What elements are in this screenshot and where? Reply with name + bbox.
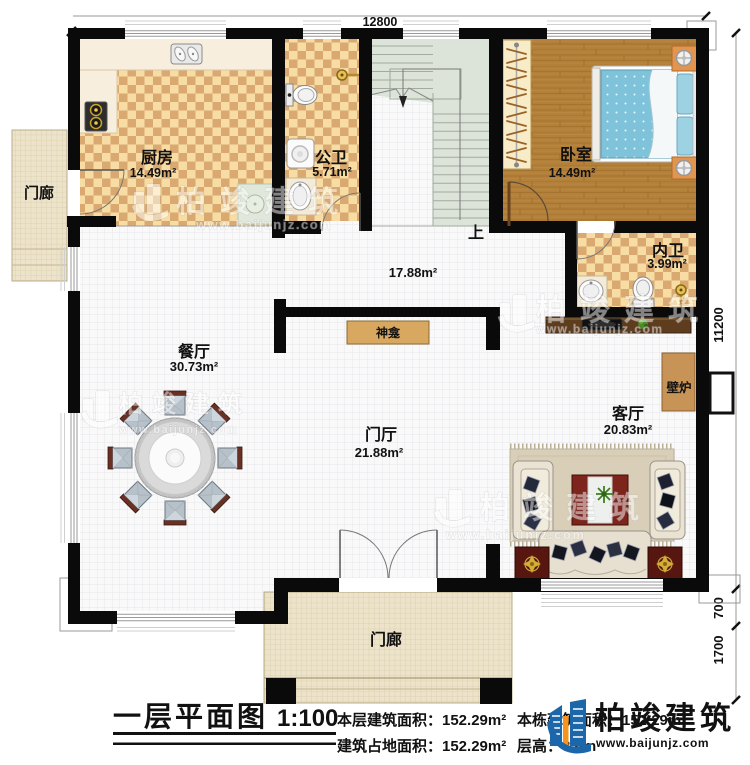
svg-text:厨房: 厨房: [141, 148, 173, 167]
svg-text:14.49m²: 14.49m²: [130, 166, 177, 180]
svg-text:www.baijunjz.com: www.baijunjz.com: [535, 322, 664, 336]
svg-text:本层建筑面积：152.29m²: 本层建筑面积：152.29m²: [337, 711, 506, 729]
svg-text:壁炉: 壁炉: [666, 380, 691, 395]
svg-text:1700: 1700: [711, 636, 726, 665]
svg-text:1:100: 1:100: [277, 705, 338, 732]
svg-text:30.73m²: 30.73m²: [170, 359, 219, 374]
svg-text:柏竣建筑: 柏竣建筑: [119, 390, 251, 418]
svg-text:神龛: 神龛: [376, 325, 401, 340]
svg-text:700: 700: [711, 597, 726, 619]
svg-text:门厅: 门厅: [365, 425, 397, 444]
svg-text:21.88m²: 21.88m²: [355, 445, 404, 460]
svg-text:柏竣建筑: 柏竣建筑: [595, 701, 735, 736]
svg-text:14.49m²: 14.49m²: [549, 166, 596, 180]
svg-text:www.baijunjz.com: www.baijunjz.com: [445, 528, 586, 542]
svg-text:柏竣建筑: 柏竣建筑: [480, 491, 652, 525]
svg-text:门廊: 门廊: [370, 630, 402, 649]
svg-text:建筑占地面积：152.29m²: 建筑占地面积：152.29m²: [337, 737, 506, 755]
svg-text:20.83m²: 20.83m²: [604, 422, 653, 437]
svg-text:柏竣建筑: 柏竣建筑: [176, 185, 352, 219]
svg-text:上: 上: [468, 224, 484, 242]
svg-text:门廊: 门廊: [24, 184, 54, 202]
svg-text:17.88m²: 17.88m²: [389, 265, 438, 280]
svg-text:客厅: 客厅: [612, 404, 644, 423]
svg-text:www.baijunjz.com: www.baijunjz.com: [595, 736, 709, 750]
svg-text:www.baijunjz.com: www.baijunjz.com: [118, 424, 238, 436]
svg-text:11200: 11200: [711, 307, 726, 342]
svg-text:5.71m²: 5.71m²: [312, 165, 352, 179]
svg-text:12800: 12800: [363, 15, 398, 29]
svg-text:3.99m²: 3.99m²: [647, 257, 687, 271]
svg-text:一层平面图: 一层平面图: [113, 701, 268, 732]
svg-text:卧室: 卧室: [560, 145, 592, 164]
svg-text:www.baijunjz.com: www.baijunjz.com: [195, 217, 332, 232]
